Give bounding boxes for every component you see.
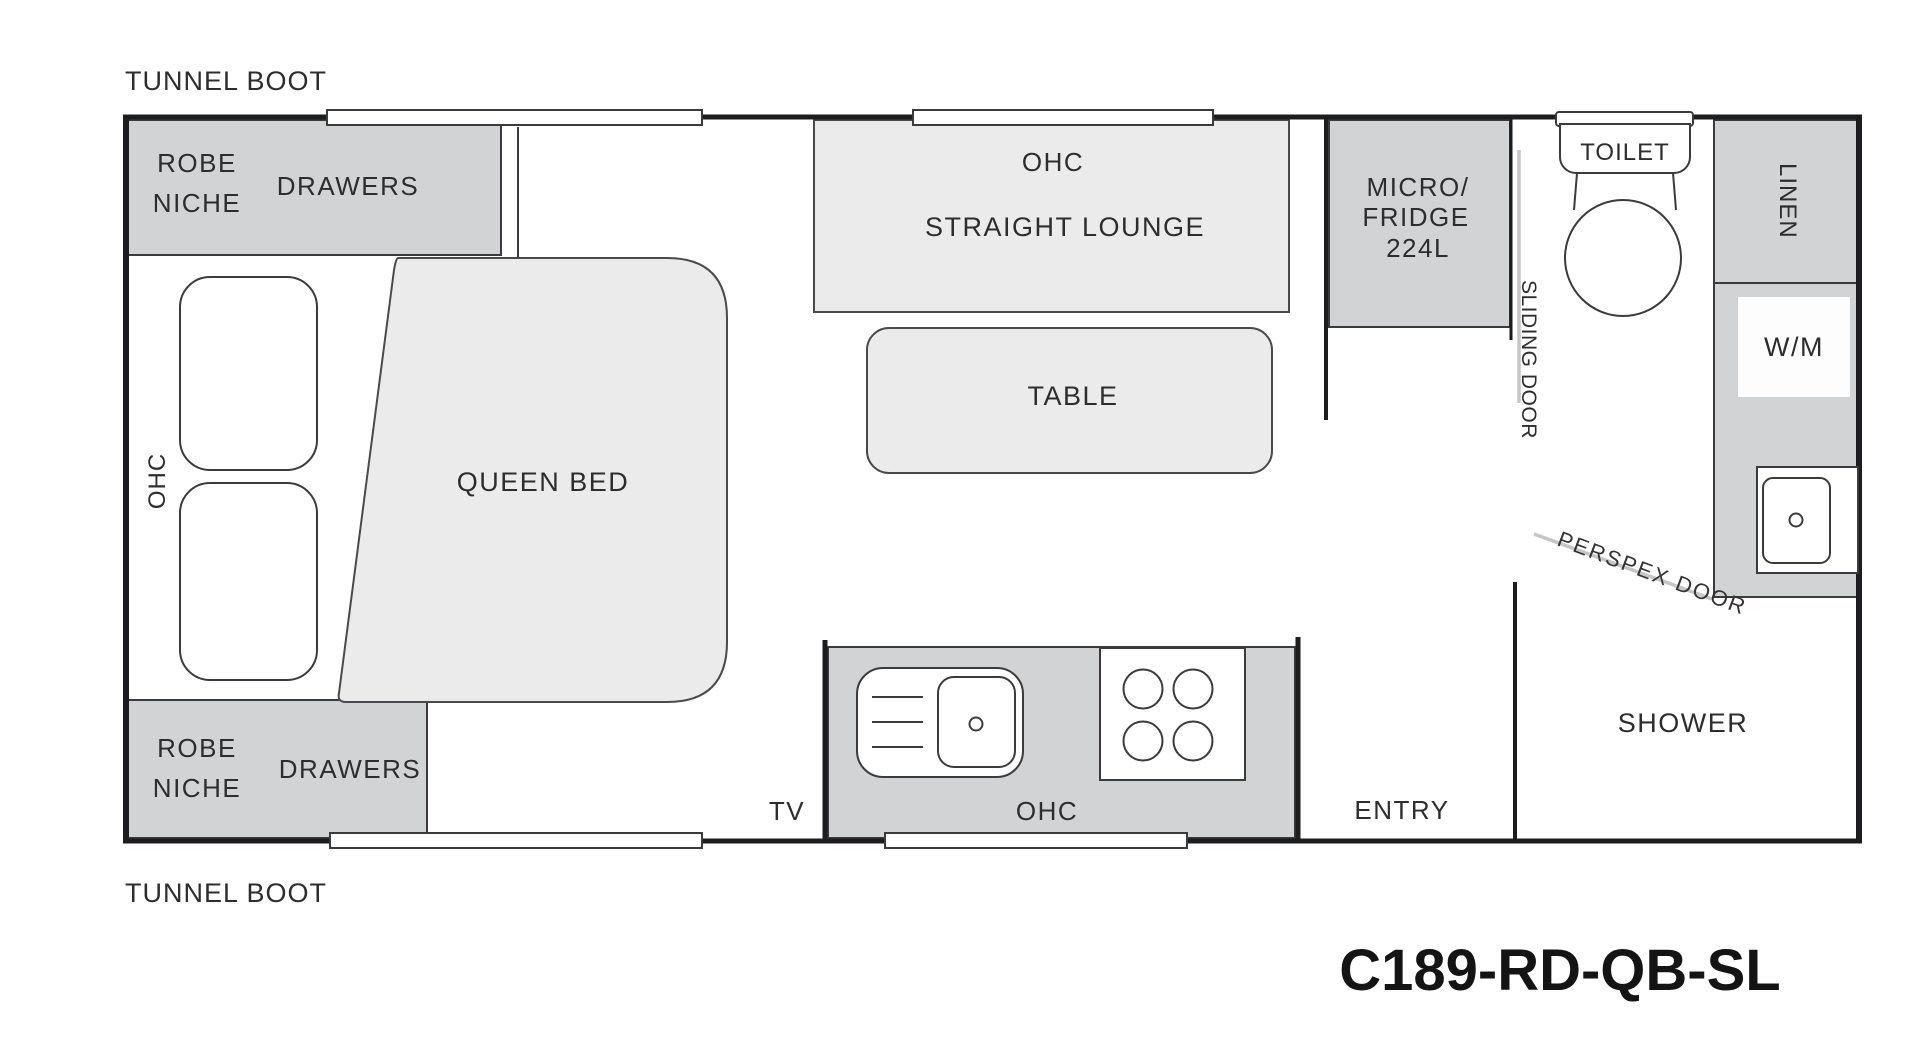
queen-bed-label: QUEEN BED [457, 467, 630, 497]
window-top-lounge [913, 110, 1213, 125]
lounge-ohc-label: OHC [1022, 147, 1084, 177]
bedside-cabinet-bottom [180, 483, 317, 680]
toilet-label: TOILET [1580, 139, 1670, 166]
robe-niche-bottom-label-line2: NICHE [153, 773, 241, 803]
burner-icon [1174, 670, 1213, 709]
entry-label: ENTRY [1354, 795, 1449, 825]
tunnel-boot-top-label: TUNNEL BOOT [125, 66, 327, 96]
window-bottom-kitchen [885, 833, 1187, 848]
vanity-tap-icon [1790, 514, 1803, 527]
robe-niche-bottom-label-line1: ROBE [157, 733, 237, 763]
tv-label: TV [769, 796, 805, 826]
linen-label: LINEN [1774, 163, 1801, 239]
bedside-cabinet-top [180, 277, 317, 470]
cooktop [1100, 648, 1245, 780]
wm-label: W/M [1764, 332, 1824, 362]
robe-niche-top-label-line1: ROBE [157, 148, 237, 178]
burner-icon [1124, 670, 1163, 709]
robe-niche-top-label-line2: NICHE [153, 188, 241, 218]
window-bottom-bedroom [330, 833, 702, 848]
micro-fridge-label-line3: 224L [1386, 233, 1450, 263]
table-label: TABLE [1027, 381, 1118, 411]
drawers-bottom-label: DRAWERS [279, 754, 421, 784]
micro-fridge-label-line2: FRIDGE [1362, 202, 1469, 232]
straight-lounge-label: STRAIGHT LOUNGE [925, 212, 1205, 242]
micro-fridge-label-line1: MICRO/ [1367, 172, 1470, 202]
sliding-door-label: SLIDING DOOR [1517, 280, 1540, 439]
toilet-bowl-icon [1565, 200, 1681, 316]
kitchen-tap-icon [970, 718, 983, 731]
kitchen-ohc-label: OHC [1016, 796, 1078, 826]
window-top-bedroom [327, 110, 702, 125]
ohc-bedroom-label: OHC [144, 453, 171, 509]
drawers-top-label: DRAWERS [277, 171, 419, 201]
burner-icon [1174, 722, 1213, 761]
caravan-floorplan: TUNNEL BOOT TUNNEL BOOT ROBE NICHE DRAWE… [0, 0, 1920, 1056]
model-code: C189-RD-QB-SL [1339, 938, 1781, 1003]
shower-label: SHOWER [1618, 708, 1749, 738]
burner-icon [1124, 722, 1163, 761]
tunnel-boot-bottom-label: TUNNEL BOOT [125, 878, 327, 908]
